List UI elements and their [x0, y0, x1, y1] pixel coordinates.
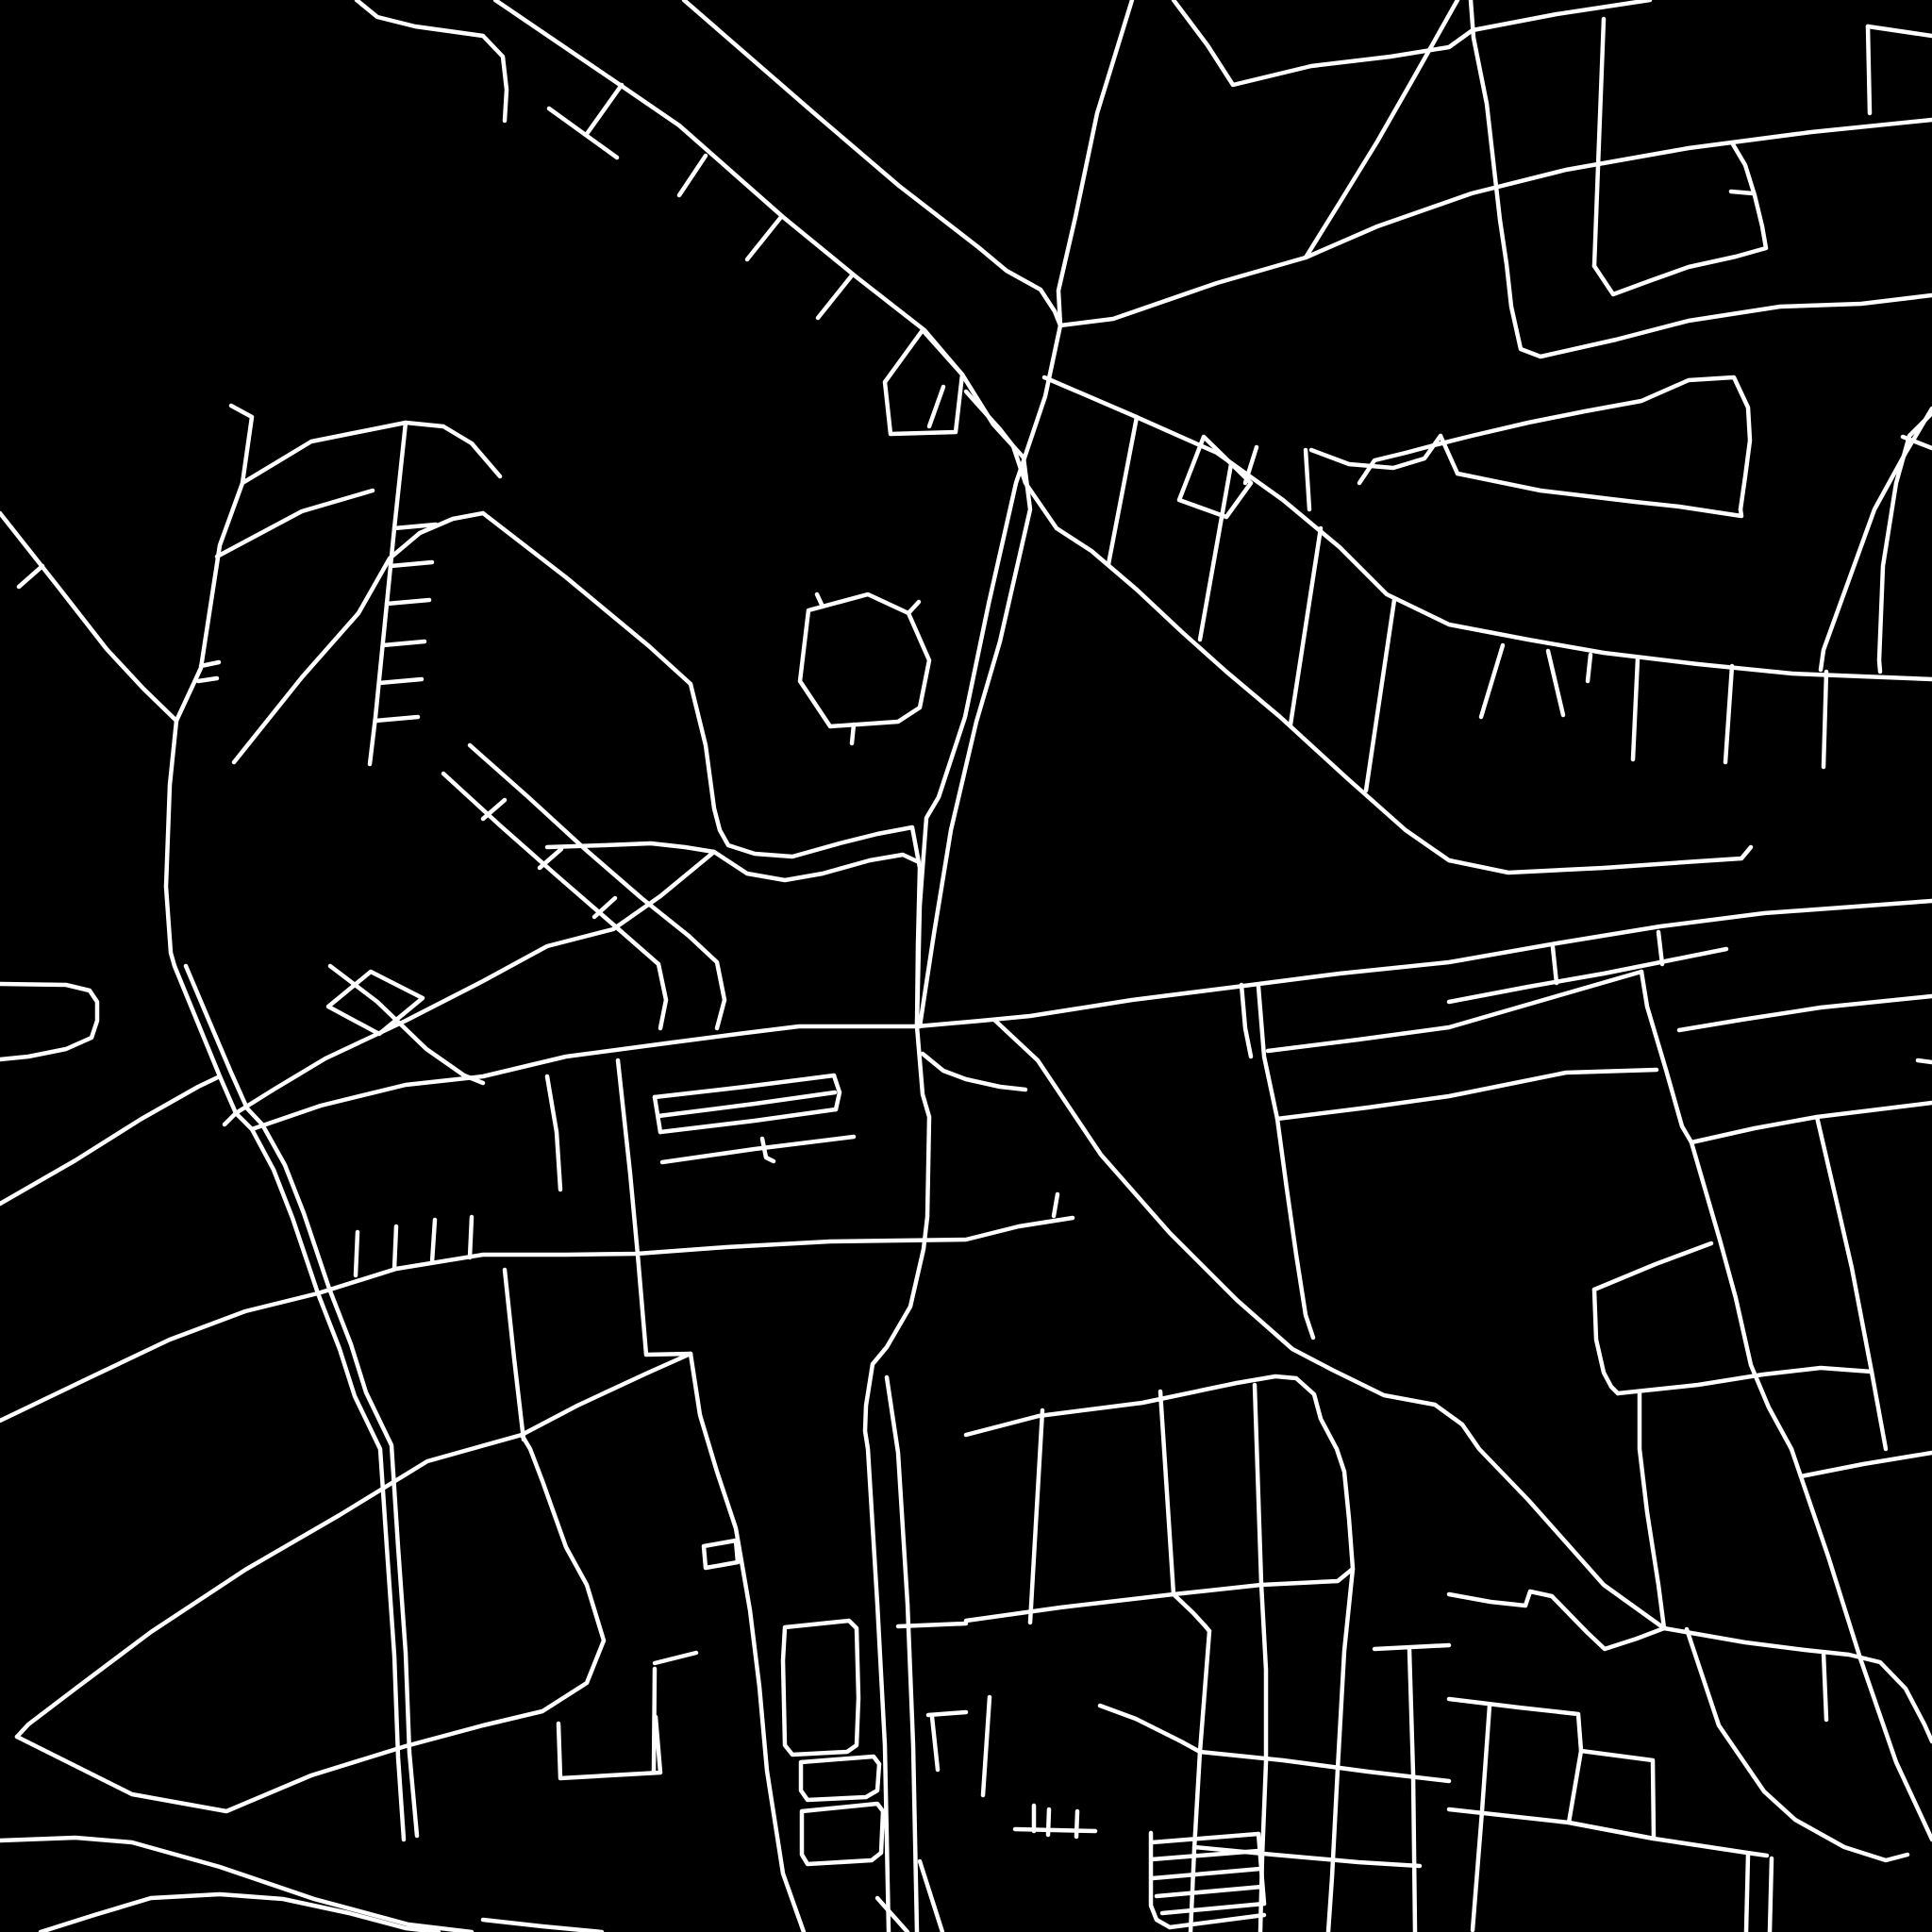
- road-right-dash: [1918, 1060, 1932, 1062]
- road-jse-stub: [1824, 1653, 1826, 1720]
- road-ns-road-stub-2: [198, 678, 217, 681]
- road-u-block-inner: [654, 1669, 655, 1773]
- road-barracks-conn-2: [928, 1712, 966, 1715]
- road-comb-n-tooth-3: [1588, 655, 1591, 681]
- road-comb-s-tooth-2: [394, 1226, 396, 1269]
- road-grid-v3a: [1746, 1855, 1748, 1932]
- road-teeth-tick-2: [1048, 1809, 1049, 1835]
- road-comb-s-tooth-3: [432, 1220, 435, 1262]
- road-grid-v3b: [1770, 1858, 1772, 1932]
- road-ne-corner-v: [1868, 26, 1870, 113]
- road-map-canvas: [0, 0, 1932, 1932]
- road-teeth-rail: [1015, 1829, 1095, 1831]
- road-pentagon-tick-s: [852, 724, 854, 743]
- road-comb-s-tooth-4: [470, 1217, 472, 1257]
- road-comb-s-tooth-1: [356, 1232, 358, 1275]
- map-viewport: [0, 0, 1932, 1932]
- road-ne-loop-stub: [1731, 192, 1753, 193]
- road-comb-n-tooth-6: [1824, 672, 1826, 767]
- road-teeth-tick-3: [1076, 1811, 1077, 1837]
